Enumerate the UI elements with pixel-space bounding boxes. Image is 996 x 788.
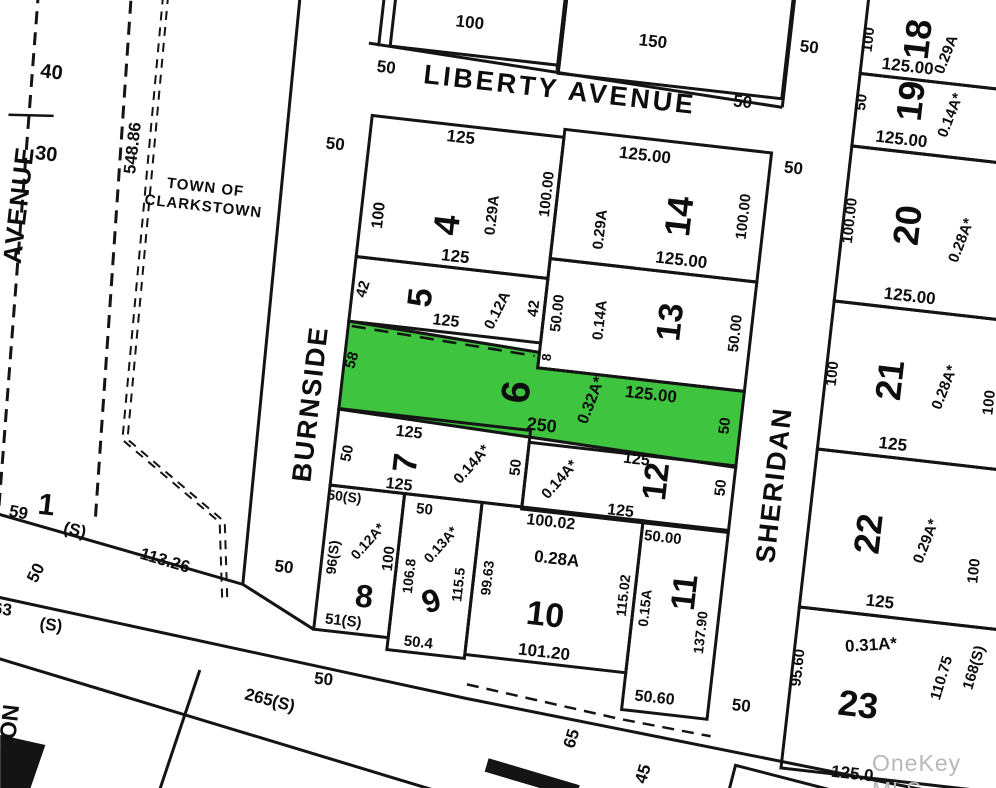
lot-9-dim-bottom: 50.4 (403, 633, 434, 651)
lot-11-number: 11 (666, 573, 704, 613)
lot-4-dim-left: 100 (370, 201, 389, 229)
lot-4-number: 4 (428, 213, 466, 237)
building-black-bar (485, 758, 580, 788)
lot-7-dim-top: 125 (395, 424, 423, 443)
lot-20-number: 20 (888, 203, 928, 247)
dim-59-suffix: (S) (62, 519, 88, 541)
lot-18-number: 18 (898, 17, 938, 61)
lot-13-dim-right: 50.00 (726, 314, 745, 353)
lot-6-dim-right: 50 (716, 417, 733, 435)
lot-4-dim-top: 125 (446, 127, 476, 147)
lot-23-dim-bottom: 125.0 (830, 763, 874, 785)
width-50-burnside-top: 50 (325, 134, 346, 153)
lot-14-area: 0.29A (591, 209, 610, 250)
lot-10-number: 10 (525, 596, 566, 634)
width-50-liberty-left: 50 (376, 58, 397, 77)
street-partial-label: ON (0, 703, 23, 740)
lot-13-boundary (536, 257, 758, 393)
lot-9-dim-top: 50 (415, 501, 433, 518)
lot-22-dim-right: 100 (965, 558, 983, 585)
lot-9-dim-left: 106.8 (400, 558, 418, 594)
lot-23-dim-left: 95.60 (788, 648, 807, 687)
lot-21-dim-right: 100 (980, 389, 996, 416)
upper-lot-a-dim: 100 (455, 12, 485, 32)
lot-8-dim-top: 50(S) (327, 487, 363, 505)
lot-5-dim-bottom: 125 (432, 312, 460, 331)
lot-9-dim-right: 115.5 (449, 567, 467, 603)
lot-7-dim-right: 50 (507, 458, 524, 476)
lot-5-number: 5 (402, 286, 438, 309)
width-50-sheridan-bottom: 50 (731, 696, 752, 715)
road-265-lower (0, 658, 444, 788)
bottom-left-lot-line (160, 667, 200, 788)
lot-6-step-dim: 8 (540, 353, 554, 362)
lot-13-dim-left: 50.00 (548, 294, 567, 333)
lot-7-dim-left: 50 (338, 444, 356, 463)
lot-19-dim-left: 50 (853, 93, 870, 111)
label-30: 30 (34, 143, 58, 165)
lot-22-boundary (798, 447, 996, 633)
width-50-burnside-bottom: 50 (313, 670, 334, 689)
lot-8-dim-right: 100 (380, 545, 398, 572)
lot-8-number: 8 (354, 579, 375, 613)
lot-7-dim-bottom: 125 (385, 476, 413, 495)
lot-12-dim-right: 50 (712, 479, 729, 497)
lot-7-number: 7 (388, 452, 424, 475)
width-50-sheridan-mid: 50 (783, 158, 804, 177)
lot-14-number: 14 (659, 194, 699, 238)
lot-23-number: 23 (836, 685, 880, 725)
lot-23-area: 0.31A* (845, 635, 898, 655)
lot-21-dim-left: 100 (824, 360, 842, 387)
lot-6-dim-bottom: 250 (526, 415, 558, 436)
plat-map: LIBERTY AVENUE BURNSIDE SHERIDAN AVENUE … (0, 0, 996, 788)
lot-10-dim-left: 99.63 (478, 560, 496, 596)
corner-black-shape (0, 735, 46, 788)
lot-8-dim-left: 96(S) (324, 540, 342, 576)
lot-22-dim-bottom: 125 (865, 592, 895, 612)
lot-1-number: 1 (36, 490, 56, 522)
lot-19-number: 19 (891, 79, 931, 123)
lot-12-dim-top: 125 (622, 451, 650, 470)
avenue-right-edge (68, 0, 166, 517)
lot-5-dim-right: 42 (526, 299, 543, 317)
lot-4-dim-bottom: 125 (440, 246, 470, 266)
lot-8-dim-bottom: 51(S) (324, 611, 362, 630)
dim-59: 59 (8, 502, 30, 522)
lot-10-area: 0.28A (533, 548, 580, 570)
tick-line (8, 111, 53, 120)
width-50-liberty-right: 50 (732, 92, 753, 111)
lot-13-number: 13 (651, 301, 689, 342)
lot-12-dim-bottom: 125 (606, 502, 634, 521)
dim-63: 63 (0, 600, 13, 619)
onekey-mls-watermark: OneKey MLS (872, 750, 996, 788)
lot-6-number: 6 (495, 379, 537, 406)
lot-13-area: 0.14A (590, 299, 609, 340)
lot-4-area: 0.29A (482, 194, 501, 235)
label-40: 40 (39, 61, 63, 83)
lot-18-dim-left: 100 (860, 26, 878, 53)
width-50-burnside-mid: 50 (274, 557, 295, 576)
dim-63-suffix: (S) (39, 615, 63, 634)
map-rotated-layer: LIBERTY AVENUE BURNSIDE SHERIDAN AVENUE … (0, 0, 996, 788)
lot-21-dim-bottom: 125 (878, 434, 908, 454)
burnside-west-edge (232, 0, 319, 584)
lot-22-number: 22 (848, 512, 888, 556)
lot-11-dim-top: 50.00 (643, 528, 682, 547)
lot-21-number: 21 (870, 358, 910, 402)
width-50-sheridan-top: 50 (799, 37, 820, 56)
lot-11-area: 0.15A (636, 589, 654, 628)
upper-lot-b-dim: 150 (638, 31, 668, 51)
